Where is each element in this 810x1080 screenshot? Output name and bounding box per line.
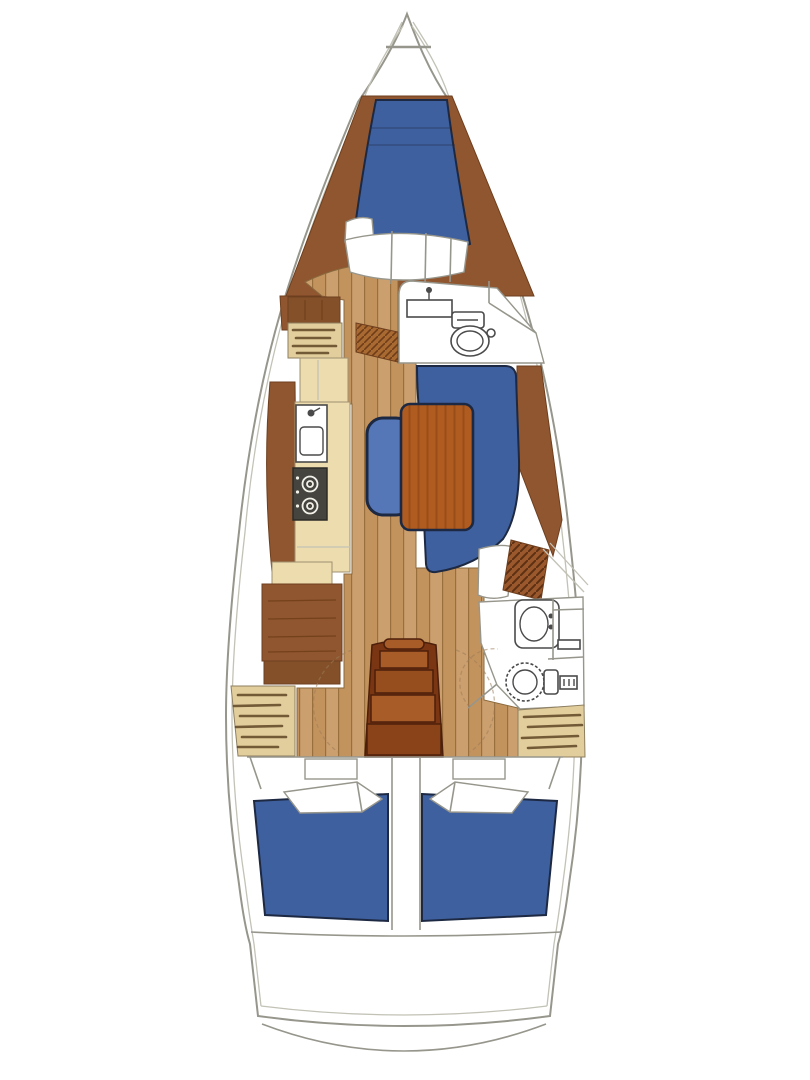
port-dresser-cabinet	[300, 358, 348, 402]
aft-galley-counter	[272, 562, 332, 584]
flush-knob	[487, 329, 495, 337]
locker-hatch-line	[236, 726, 282, 727]
stove-knob	[296, 490, 299, 493]
wardrobe	[288, 297, 340, 323]
aft-galley-cabinet	[262, 584, 342, 661]
aft-galley-cabinet-lower	[264, 661, 340, 684]
companionway-step	[371, 695, 435, 722]
forward-head-sink	[407, 300, 452, 317]
aft-head-shelf-line	[553, 609, 584, 610]
seat-divider-line	[425, 233, 426, 286]
companionway-step	[375, 670, 433, 693]
companionway-step	[384, 639, 424, 649]
port-aft-locker	[231, 686, 295, 756]
swim-platform-line	[262, 1024, 546, 1051]
forward-head-faucet	[426, 287, 432, 293]
cabin-door-frame-starboard	[453, 759, 505, 779]
stove-knob	[296, 504, 299, 507]
cabin-door-frame-port	[305, 759, 357, 779]
aft-head-cistern	[544, 670, 558, 694]
seat-divider-line	[450, 238, 451, 282]
stove-knob	[296, 476, 299, 479]
locker-hatch-line	[234, 705, 280, 706]
companionway-step	[367, 724, 441, 755]
aft-head-toilet-bowl	[506, 663, 544, 701]
nav-chart-table	[503, 540, 549, 600]
yacht-floor-plan	[0, 0, 810, 1080]
port-hull-trim-forward	[280, 296, 288, 330]
seat-divider-line	[391, 231, 392, 284]
floor-plan-canvas	[0, 0, 810, 1080]
companionway-step	[380, 651, 428, 668]
salon-table	[401, 404, 473, 530]
aft-head-shelf-box	[558, 640, 580, 649]
